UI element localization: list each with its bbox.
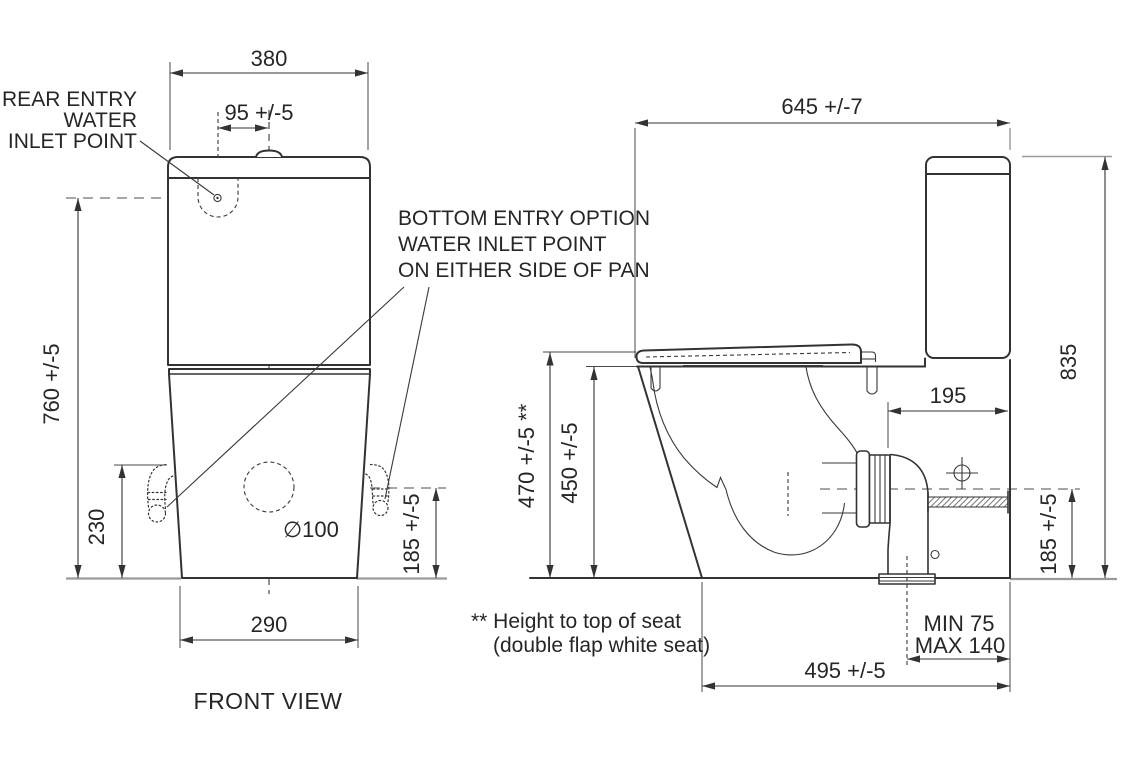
rear-entry-line2: WATER xyxy=(64,109,138,132)
dim-seat-height-text: 470 +/-5 ** xyxy=(514,403,539,508)
toilet-dimension-drawing: 380 95 +/-5 760 +/-5 230 185 +/-5 xyxy=(0,0,1140,760)
front-pan xyxy=(169,369,370,578)
rear-entry-label: REAR ENTRY WATER INLET POINT xyxy=(2,88,137,153)
bottom-entry-pipe-left xyxy=(148,465,175,523)
flush-button xyxy=(256,151,282,158)
fixing-hole xyxy=(931,551,939,559)
bottom-entry-pipe-right xyxy=(364,465,390,516)
dim-pan-height: 450 +/-5 xyxy=(557,367,637,579)
dim-inlet-height-text: 760 +/-5 xyxy=(39,343,64,424)
rear-entry-line1: REAR ENTRY xyxy=(2,88,137,111)
bowl-interior xyxy=(650,367,877,555)
side-floor-line xyxy=(530,578,1117,579)
dim-bottom-entry-height-text: 230 xyxy=(84,509,109,546)
dim-base-width: 290 xyxy=(180,586,358,648)
dim-inlet-offset: 95 +/-5 xyxy=(218,100,294,128)
side-seat xyxy=(637,344,876,365)
dim-front-outlet-height-text: 185 +/-5 xyxy=(399,493,424,574)
dim-overall-depth-text: 645 +/-7 xyxy=(781,94,862,119)
dim-outlet-setout-range: MIN 75 MAX 140 xyxy=(907,582,1010,692)
dim-side-outlet-height-text: 185 +/-5 xyxy=(1036,493,1061,574)
footnote-line2: (double flap white seat) xyxy=(493,634,710,657)
side-view: 645 +/-7 835 195 470 +/-5 ** 450 +/-5 xyxy=(471,94,1117,692)
front-cistern xyxy=(168,151,370,366)
outlet-diameter-label: ∅100 xyxy=(283,517,339,542)
dim-base-depth-text: 495 +/-5 xyxy=(804,658,885,683)
bottom-entry-line1: BOTTOM ENTRY OPTION xyxy=(398,207,650,230)
dim-side-outlet-height: 185 +/-5 xyxy=(1036,489,1072,578)
dim-tank-width-text: 380 xyxy=(251,46,288,71)
rear-entry-line3: INLET POINT xyxy=(8,130,137,153)
footnote-line1: ** Height to top of seat xyxy=(471,610,681,633)
bottom-entry-line2: WATER INLET POINT xyxy=(398,233,607,256)
dim-base-width-text: 290 xyxy=(251,612,288,637)
dim-front-outlet-height: 185 +/-5 xyxy=(399,488,436,578)
dim-outlet-max-text: MAX 140 xyxy=(915,633,1006,658)
dim-inlet-offset-text: 95 +/-5 xyxy=(224,100,293,125)
front-view-title: FRONT VIEW xyxy=(194,688,343,714)
bottom-entry-line3: ON EITHER SIDE OF PAN xyxy=(398,259,650,282)
dim-inlet-height: 760 +/-5 xyxy=(39,198,78,578)
technical-drawing-page: 380 95 +/-5 760 +/-5 230 185 +/-5 xyxy=(0,0,1140,760)
side-inlet-marker xyxy=(946,457,978,489)
dim-setout: 195 xyxy=(888,383,1008,448)
fixing-rod xyxy=(928,491,1008,514)
seat-footnote: ** Height to top of seat (double flap wh… xyxy=(471,610,710,657)
dim-overall-height-text: 835 xyxy=(1056,344,1081,381)
dim-pan-height-text: 450 +/-5 xyxy=(557,422,582,503)
dim-setout-text: 195 xyxy=(930,383,967,408)
side-cistern xyxy=(926,157,1010,358)
bottom-entry-label: BOTTOM ENTRY OPTION WATER INLET POINT ON… xyxy=(398,207,650,282)
dim-bottom-entry-height: 230 xyxy=(84,465,167,578)
